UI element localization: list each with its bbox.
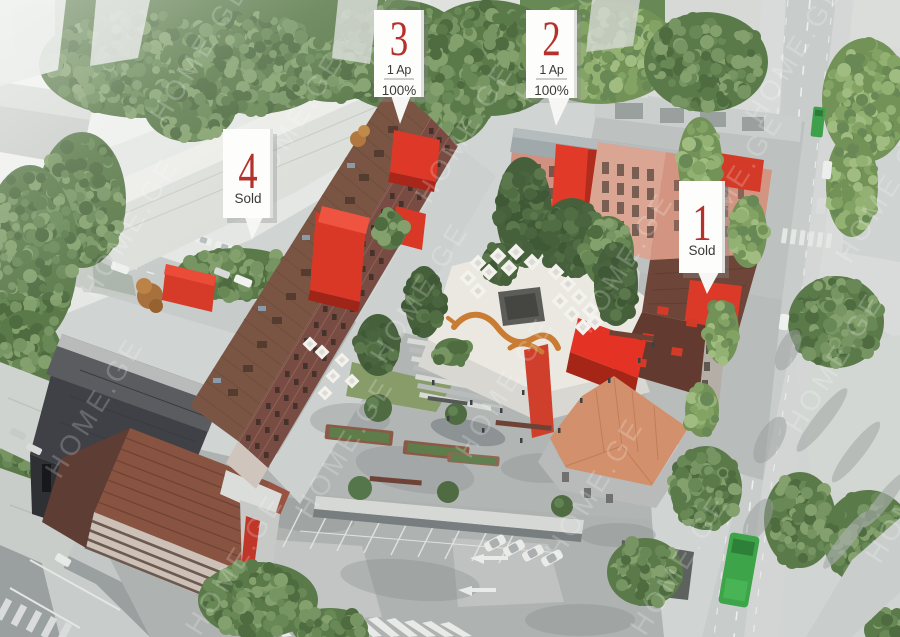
- svg-text:Sold: Sold: [688, 243, 715, 258]
- svg-text:100%: 100%: [382, 83, 417, 98]
- svg-text:3: 3: [390, 11, 408, 67]
- svg-text:Sold: Sold: [234, 191, 261, 206]
- svg-text:1 Ap: 1 Ap: [539, 63, 563, 77]
- svg-text:2: 2: [542, 11, 560, 67]
- svg-text:1 Ap: 1 Ap: [387, 63, 411, 77]
- svg-text:100%: 100%: [534, 83, 569, 98]
